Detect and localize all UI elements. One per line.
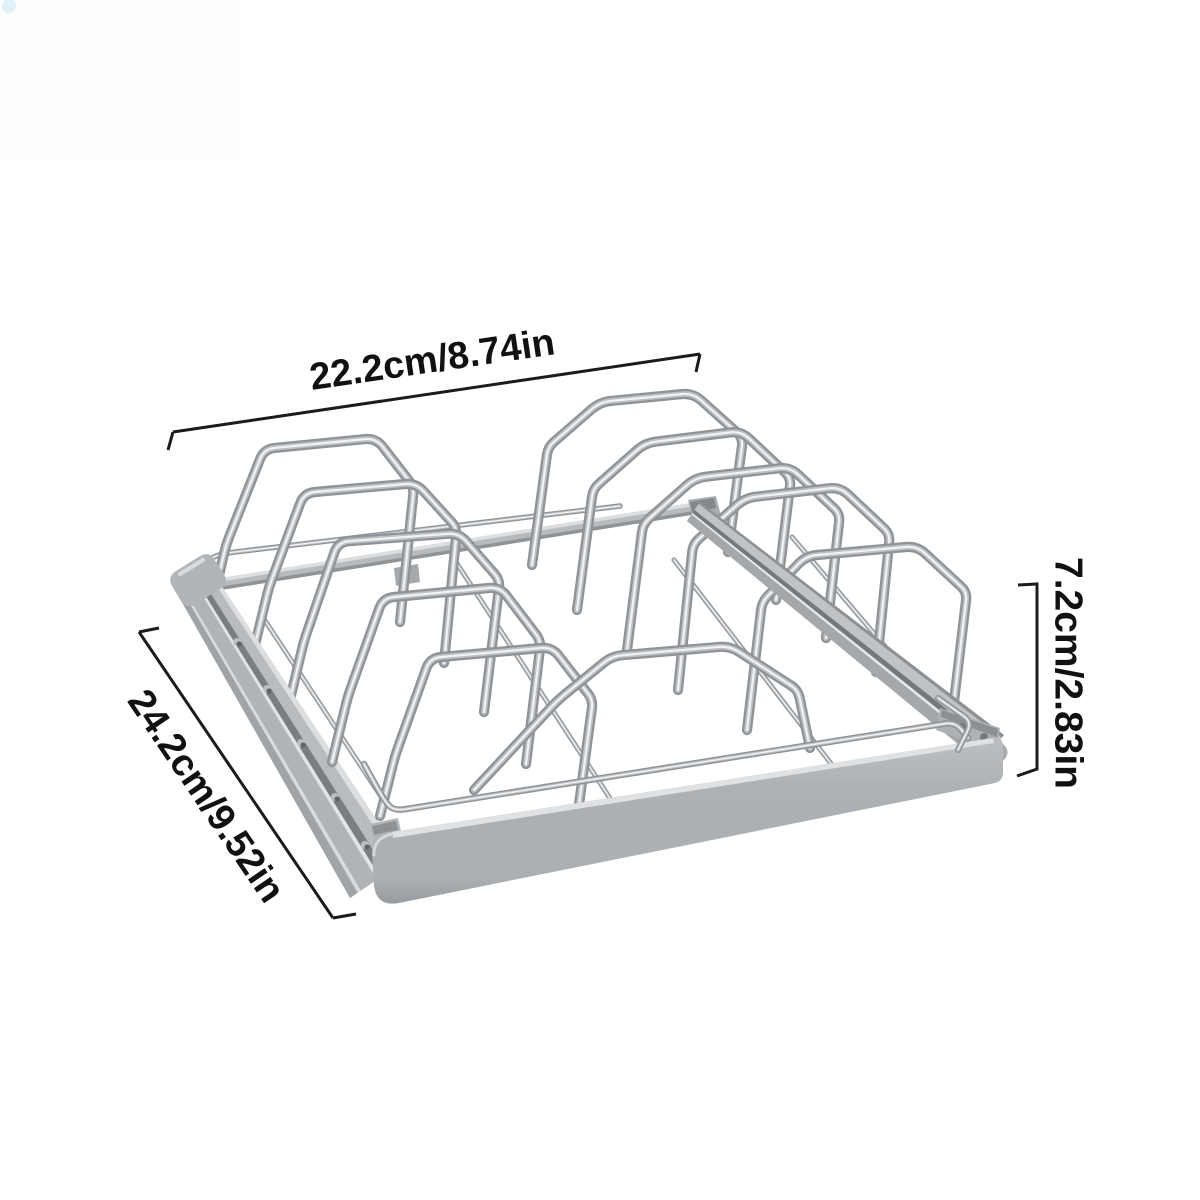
svg-text:7.2cm/2.83in: 7.2cm/2.83in — [1047, 557, 1090, 789]
